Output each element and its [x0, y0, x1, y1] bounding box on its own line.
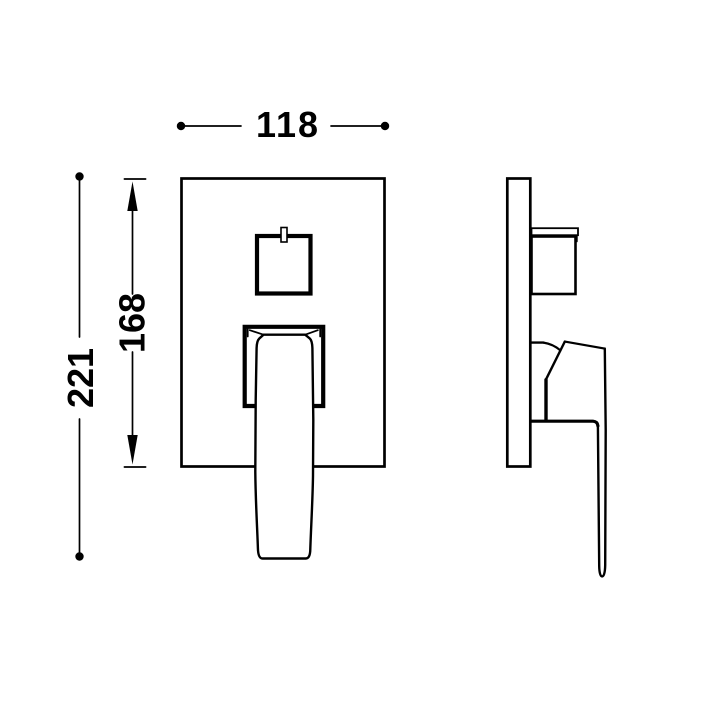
svg-text:221: 221 [60, 348, 101, 408]
svg-text:168: 168 [112, 293, 153, 353]
svg-text:118: 118 [256, 104, 320, 145]
